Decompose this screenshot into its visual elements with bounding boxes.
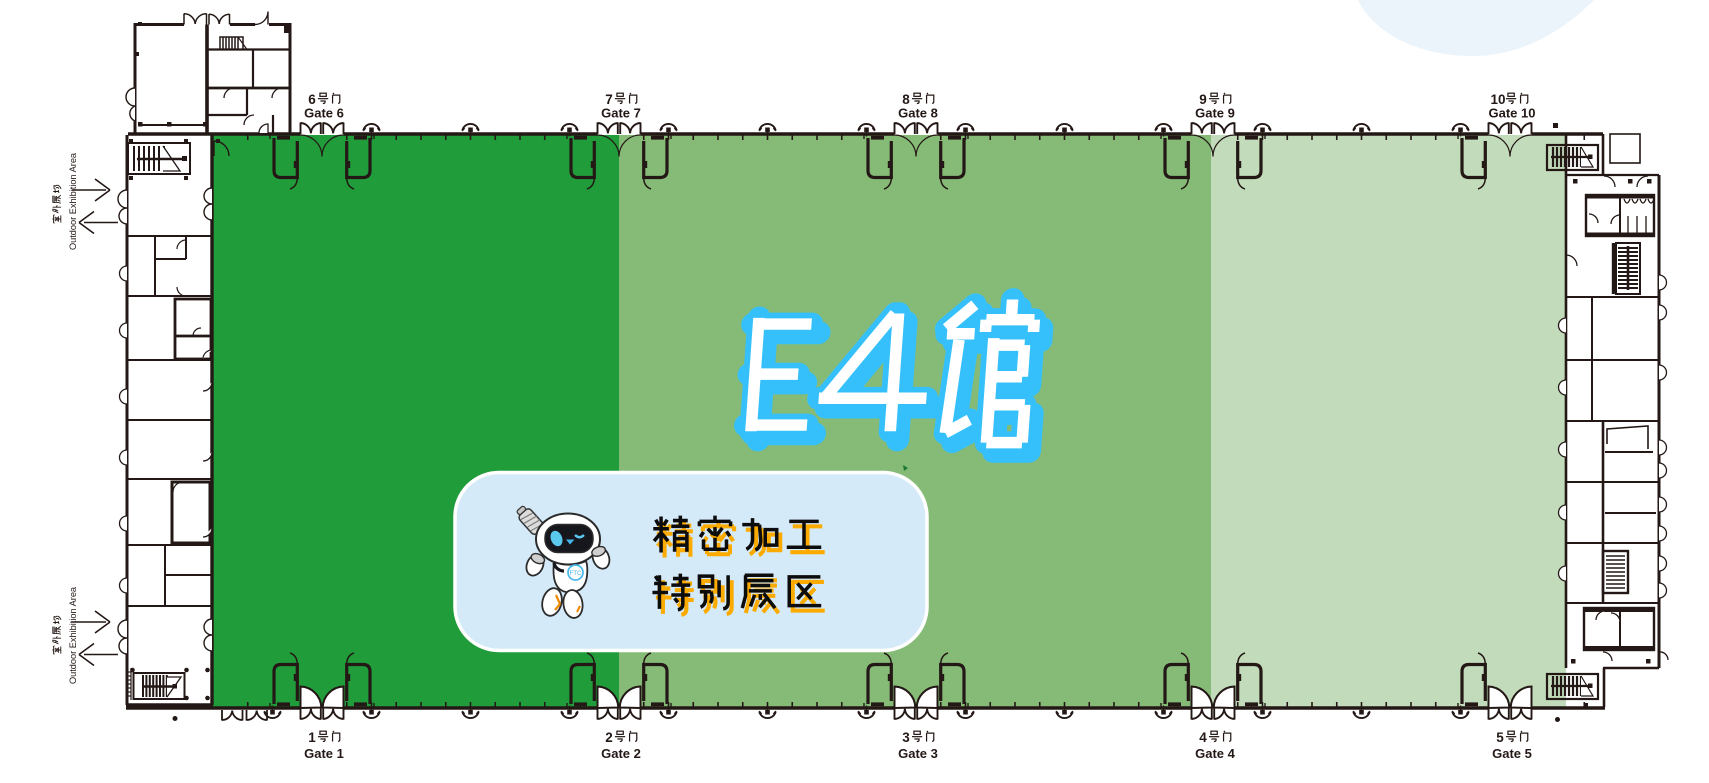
- svg-text:Gate 4: Gate 4: [1195, 746, 1236, 761]
- svg-text:Gate 5: Gate 5: [1492, 746, 1532, 761]
- svg-text:Gate 7: Gate 7: [601, 106, 641, 121]
- svg-text:Gate 10: Gate 10: [1489, 106, 1536, 121]
- svg-text:4: 4: [1199, 730, 1207, 745]
- svg-text:Outdoor Exhibition Area: Outdoor Exhibition Area: [68, 586, 78, 684]
- svg-text:5: 5: [1496, 730, 1504, 745]
- svg-text:Gate 1: Gate 1: [304, 746, 344, 761]
- svg-text:Gate 9: Gate 9: [1195, 106, 1235, 121]
- svg-text:Gate 3: Gate 3: [898, 746, 938, 761]
- svg-text:FTC: FTC: [570, 571, 582, 577]
- svg-text:Gate 2: Gate 2: [601, 746, 641, 761]
- svg-text:Gate 8: Gate 8: [898, 106, 938, 121]
- svg-text:2: 2: [605, 730, 613, 745]
- svg-text:3: 3: [902, 730, 910, 745]
- svg-text:1: 1: [308, 730, 316, 745]
- svg-text:Gate 6: Gate 6: [304, 106, 344, 121]
- svg-text:Outdoor Exhibition Area: Outdoor Exhibition Area: [68, 152, 78, 250]
